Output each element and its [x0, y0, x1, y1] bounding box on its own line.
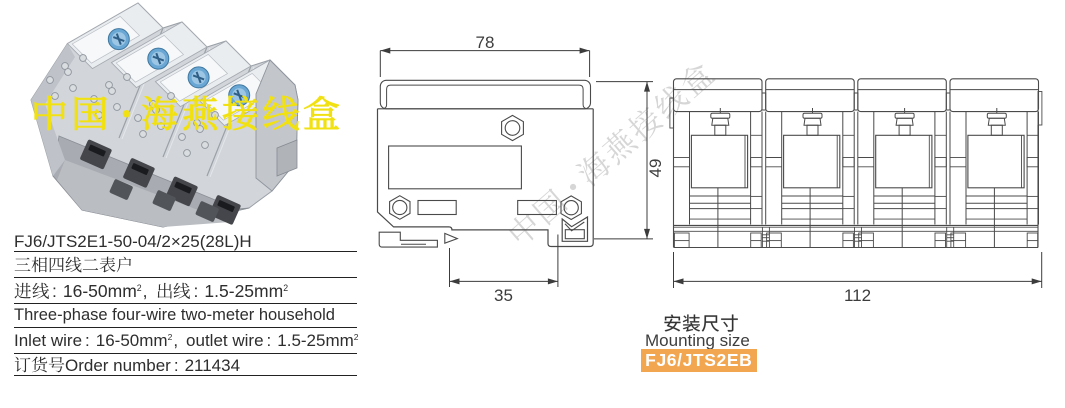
svg-text:78: 78: [476, 33, 495, 52]
svg-text:35: 35: [494, 286, 513, 305]
svg-text:112: 112: [844, 286, 871, 305]
